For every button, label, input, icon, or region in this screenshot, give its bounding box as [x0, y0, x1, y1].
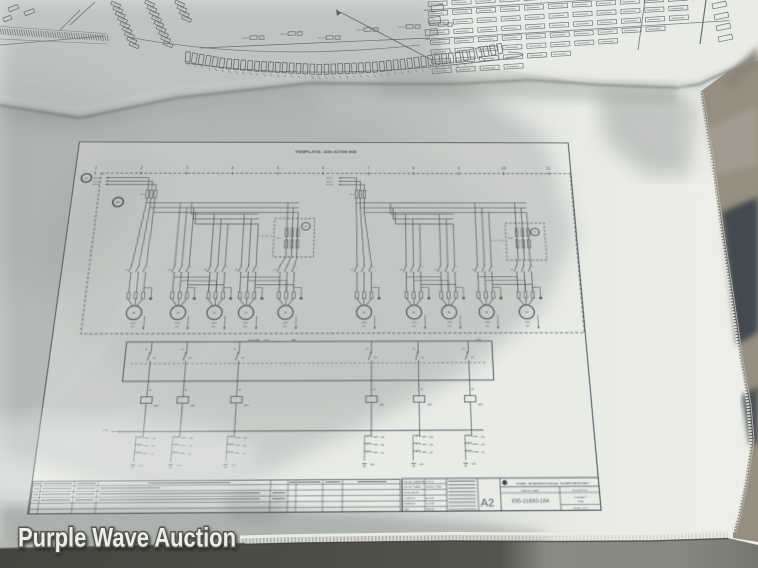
svg-text:Purple Wave Auction: Purple Wave Auction — [18, 523, 236, 553]
